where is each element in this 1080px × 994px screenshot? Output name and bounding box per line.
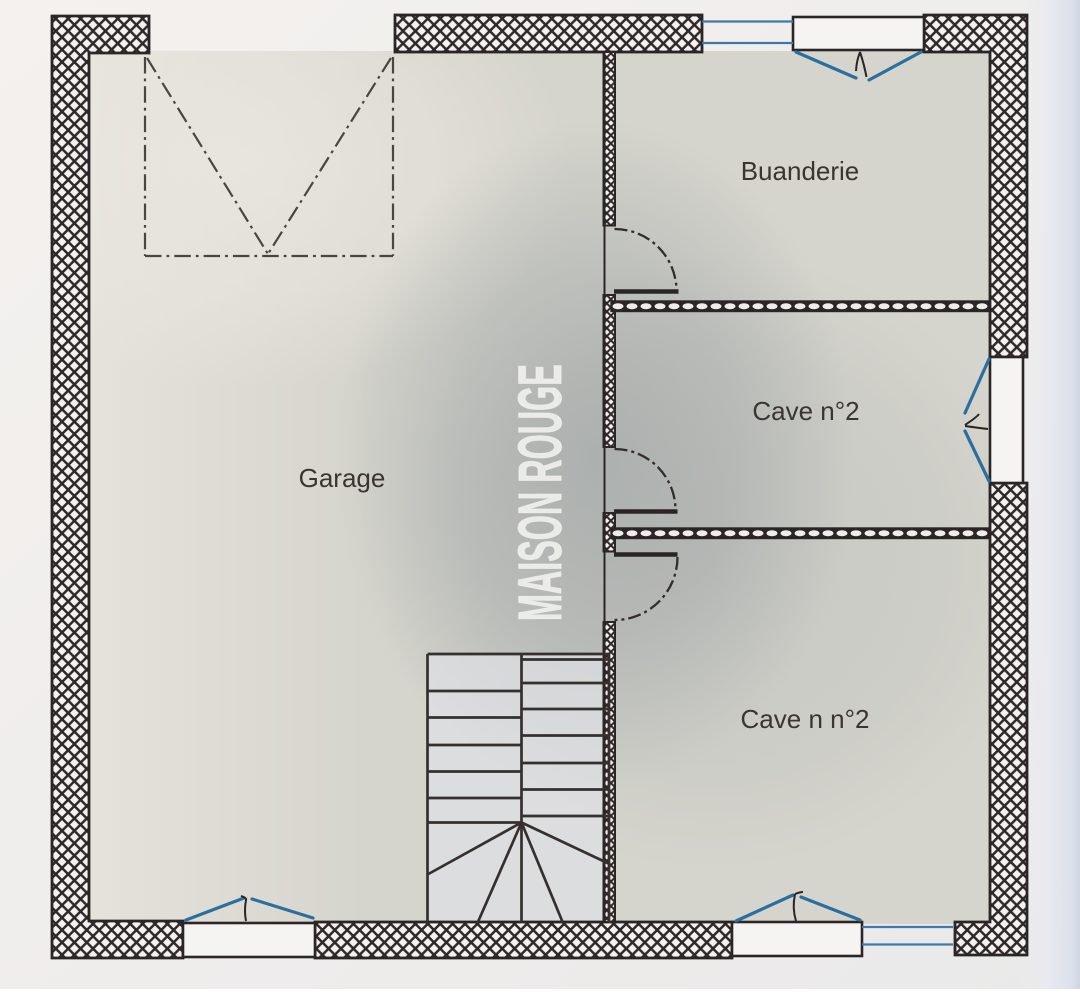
svg-text:Buanderie: Buanderie — [741, 156, 860, 186]
svg-text:MAISON ROUGE: MAISON ROUGE — [507, 364, 574, 621]
svg-text:Cave n°2: Cave n°2 — [752, 396, 859, 426]
svg-text:Garage: Garage — [299, 463, 386, 493]
svg-text:Cave n n°2: Cave n n°2 — [741, 704, 870, 734]
